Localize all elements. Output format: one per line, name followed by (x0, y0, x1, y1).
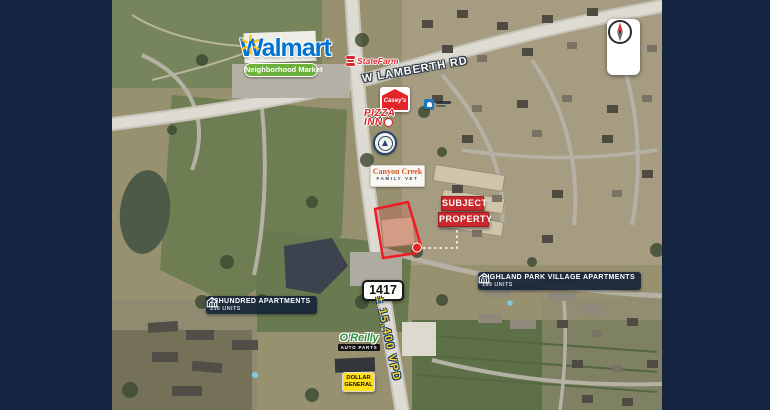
apartment-units: 169 UNITS (482, 282, 635, 288)
apartment-name: 23HUNDRED APARTMENTS (210, 298, 311, 306)
canyon-creek-sub: FAMILY VET (371, 176, 424, 182)
dollar-general-logo: DOLLAR GENERAL (343, 373, 374, 391)
circular-seal-logo (373, 131, 397, 155)
oreilly-wordmark: O'Reilly (338, 332, 380, 344)
blue-square-business-logo (424, 99, 451, 109)
apartment-name: HIGHLAND PARK VILLAGE APARTMENTS (482, 274, 635, 282)
dollar-general-line2: GENERAL (343, 382, 374, 389)
pizza-inn-line2: INN (364, 117, 383, 128)
state-farm-ovals-icon (346, 56, 355, 66)
dollar-general-line1: DOLLAR (343, 375, 374, 382)
canyon-creek-name: Canyon Creek (371, 168, 424, 176)
callout-highland-park-apartments: HIGHLAND PARK VILLAGE APARTMENTS 169 UNI… (478, 272, 641, 290)
canyon-creek-vet-sign: Canyon Creek FAMILY VET (370, 165, 425, 187)
state-farm-wordmark: StateFarm (357, 56, 399, 66)
subject-property-label-line2: PROPERTY (438, 212, 489, 227)
north-compass: N (607, 19, 640, 75)
walmart-tagline: Neighborhood Market (244, 63, 318, 77)
chef-icon (384, 118, 393, 127)
aerial-map-flyer: Walmart Neighborhood Market StateFarm (0, 0, 770, 410)
callout-23hundred-apartments: 23HUNDRED APARTMENTS 216 UNITS (206, 296, 317, 314)
subject-marker-dot (413, 243, 422, 252)
apartment-icon (478, 272, 490, 284)
subject-property-label-line1: SUBJECT (441, 196, 484, 211)
seal-emblem-icon (382, 140, 388, 146)
walmart-logo: Walmart Neighborhood Market (240, 34, 331, 77)
oreilly-banner: AUTO PARTS (338, 344, 380, 351)
satellite-map: Walmart Neighborhood Market StateFarm (112, 0, 662, 410)
caseys-wordmark: Casey's (380, 98, 410, 104)
unreadable-text-bar (436, 105, 446, 107)
pizza-inn-logo: PIZZA INN (364, 110, 395, 127)
walmart-spark-icon (240, 34, 261, 55)
tooth-icon (424, 99, 434, 109)
compass-icon (607, 19, 633, 45)
apartment-units: 216 UNITS (210, 306, 311, 312)
unreadable-text-bar (436, 101, 451, 104)
apartment-icon (206, 296, 218, 308)
oreilly-logo: O'Reilly AUTO PARTS (338, 332, 380, 351)
state-farm-logo: StateFarm (346, 56, 399, 66)
